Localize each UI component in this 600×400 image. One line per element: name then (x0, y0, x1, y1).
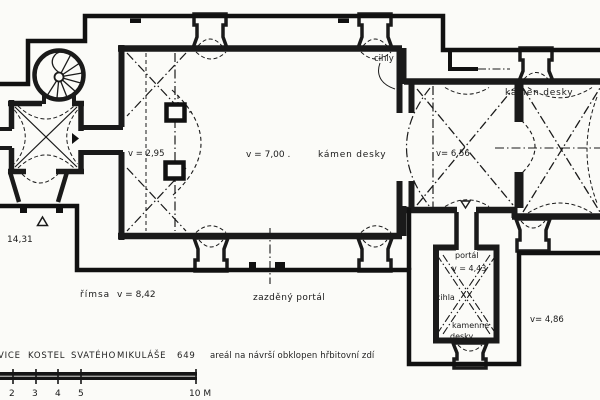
buttress (193, 14, 227, 48)
paper-background (0, 0, 600, 400)
label-chancel-height: v= 6,56 (436, 149, 470, 159)
label-sacristy-portal: portál (455, 251, 479, 260)
caption: VICE KOSTEL SVATÉHO MIKULÁŠE 649 areál n… (0, 349, 375, 361)
label-cornice-height: v = 8,42 (117, 290, 156, 300)
scale-tick-label-5: 5 (78, 389, 84, 399)
caption-word-kostel: KOSTEL (28, 351, 65, 361)
buttress (358, 14, 392, 48)
stair-newel (55, 73, 64, 82)
plan-sheet: cihly kámen desky v = 7,00 . kámen desky… (0, 0, 600, 400)
scale-tick-label-3: 3 (32, 389, 38, 399)
label-sacristy-stone-2: desky (450, 332, 474, 341)
buttress (358, 238, 392, 271)
label-sacristy-portal-height: v = 4,43 (452, 264, 486, 273)
caption-site-number: 649 (177, 351, 196, 361)
caption-word-mikulase: MIKULÁŠE (117, 349, 166, 361)
caption-site-name: VICE (0, 351, 21, 361)
label-loft-height: v = 2,95 (128, 149, 164, 159)
label-sacristy-brick: cihla (436, 293, 455, 302)
loft-pillar (167, 105, 185, 121)
buttress (194, 238, 228, 271)
label-datum-height: 14,31 (7, 235, 33, 245)
scale-end-label: 10 M (189, 389, 211, 399)
buttress (519, 48, 553, 81)
church-floor-plan: cihly kámen desky v = 7,00 . kámen desky… (0, 0, 600, 400)
label-cornice: římsa (80, 290, 110, 300)
label-apse-material: kámen desky (505, 88, 573, 98)
label-nave-material: kámen desky (318, 150, 386, 160)
caption-description: areál na návrší obklopen hřbitovní zdí (210, 350, 375, 361)
label-walled-portal: zazděný portál (253, 293, 325, 303)
label-sacristy-stone-1: kamenne (452, 321, 489, 330)
buttress (516, 219, 550, 251)
label-cihly: cihly (374, 54, 394, 64)
label-nave-height: v = 7,00 . (246, 150, 290, 160)
caption-word-svateho: SVATÉHO (71, 349, 116, 361)
scale-tick-label-2: 2 (9, 389, 15, 399)
scale-tick-label-4: 4 (55, 389, 61, 399)
loft-pillar (166, 163, 184, 179)
label-sacristy-height: v= 4,86 (530, 315, 564, 325)
